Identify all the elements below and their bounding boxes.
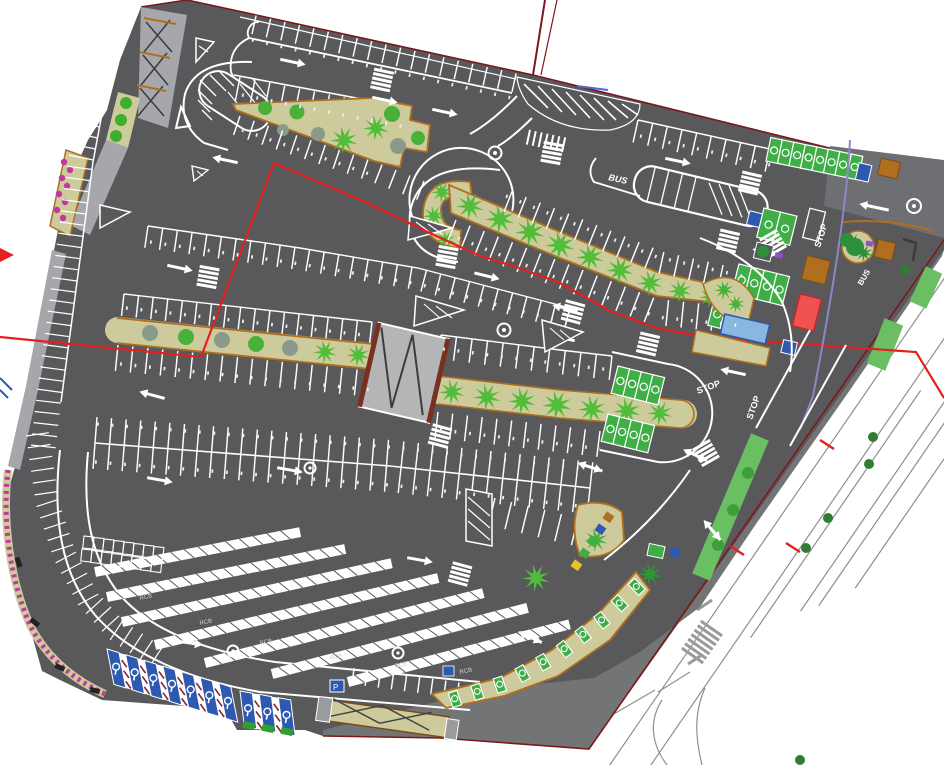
svg-text:P: P xyxy=(333,683,338,692)
